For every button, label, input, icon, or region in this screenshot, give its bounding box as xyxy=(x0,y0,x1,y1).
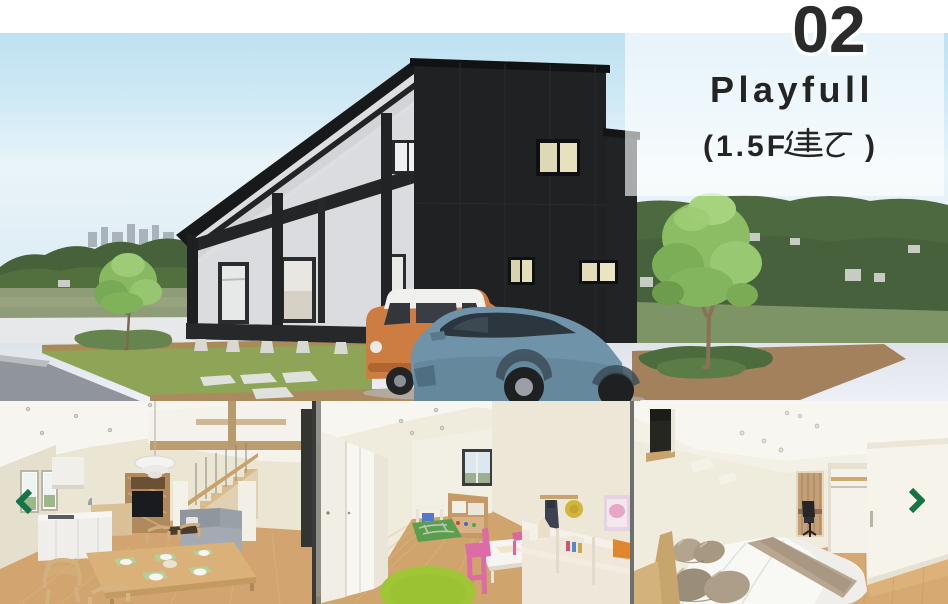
svg-text:): ) xyxy=(865,130,875,163)
svg-text:(1.5F: (1.5F xyxy=(703,130,788,163)
svg-text:02: 02 xyxy=(792,0,865,64)
